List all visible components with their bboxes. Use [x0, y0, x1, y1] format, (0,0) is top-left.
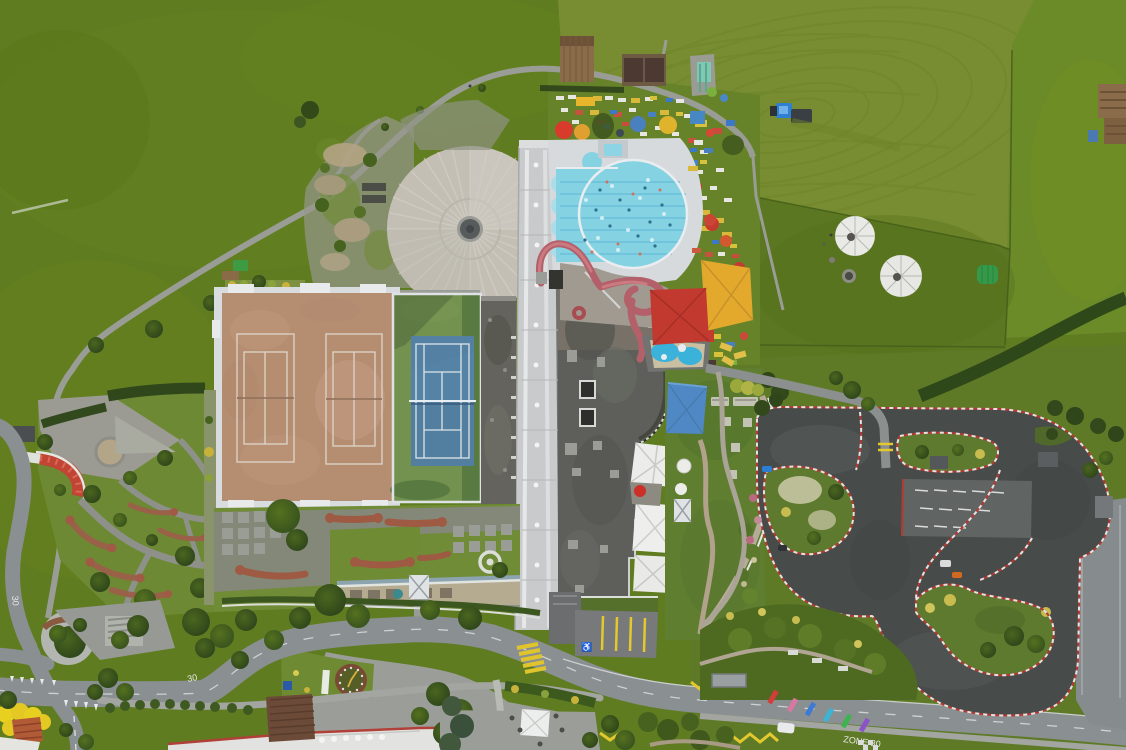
svg-text:♿: ♿ [581, 641, 592, 652]
svg-text:30: 30 [186, 672, 198, 684]
svg-text:30: 30 [10, 595, 21, 606]
